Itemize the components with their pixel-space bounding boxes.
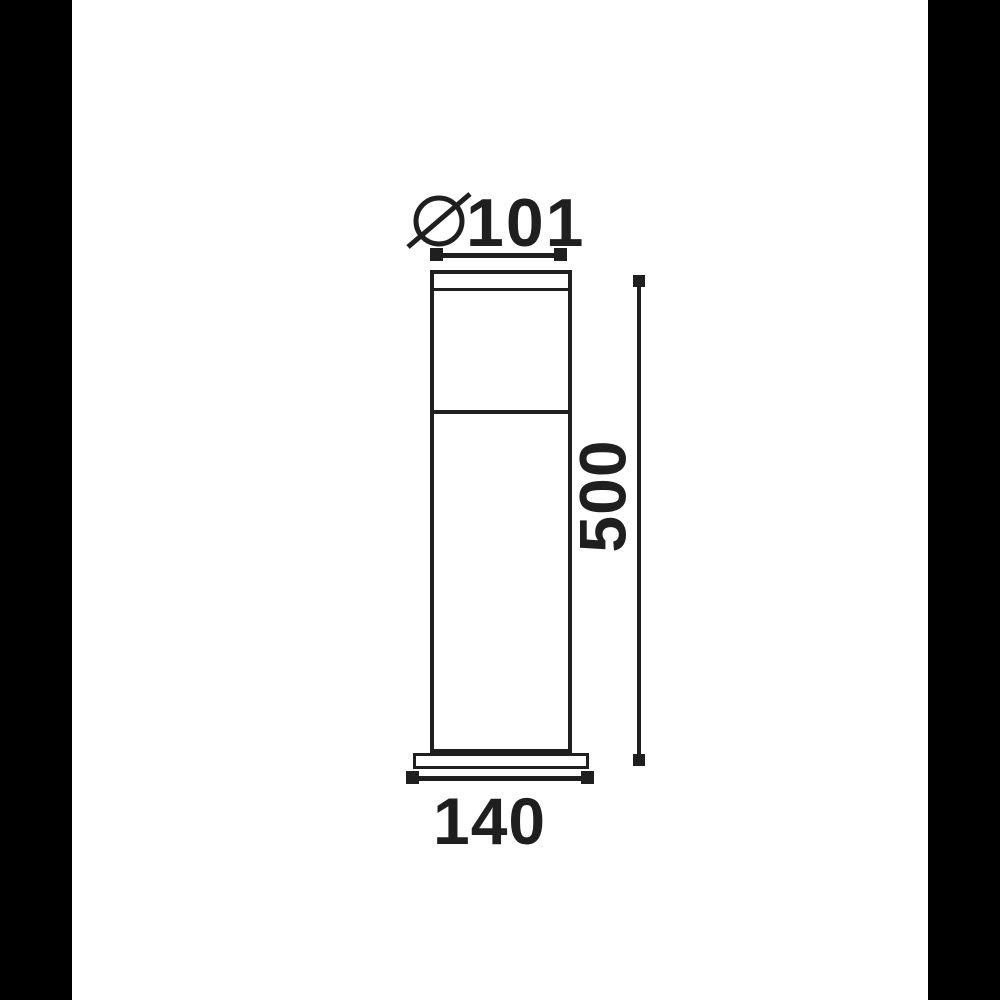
dimension-endpoint-square	[430, 248, 443, 261]
lamp-diffuser-divider-line	[433, 410, 569, 414]
height-dimension-label: 500	[570, 439, 636, 552]
dimension-endpoint-square	[581, 771, 594, 784]
diameter-symbol-icon	[404, 189, 472, 251]
dimension-drawing: 101 140 500	[0, 0, 1000, 1000]
dimension-endpoint-square	[633, 754, 645, 766]
diameter-dimension-label: 101	[404, 189, 585, 257]
base-width-dimension-line	[412, 776, 588, 781]
dimension-endpoint-square	[406, 771, 419, 784]
lamp-body-outline	[430, 270, 572, 753]
diameter-value: 101	[466, 189, 585, 257]
dimension-endpoint-square	[554, 248, 567, 261]
lamp-cap-separator-line	[433, 288, 569, 291]
pillarbox-right-bar	[928, 0, 1000, 1000]
diameter-dimension-line	[437, 253, 561, 258]
lamp-base-plate-outline	[413, 753, 589, 769]
base-width-dimension-label: 140	[433, 788, 546, 854]
dimension-endpoint-square	[633, 275, 645, 287]
pillarbox-left-bar	[0, 0, 72, 1000]
